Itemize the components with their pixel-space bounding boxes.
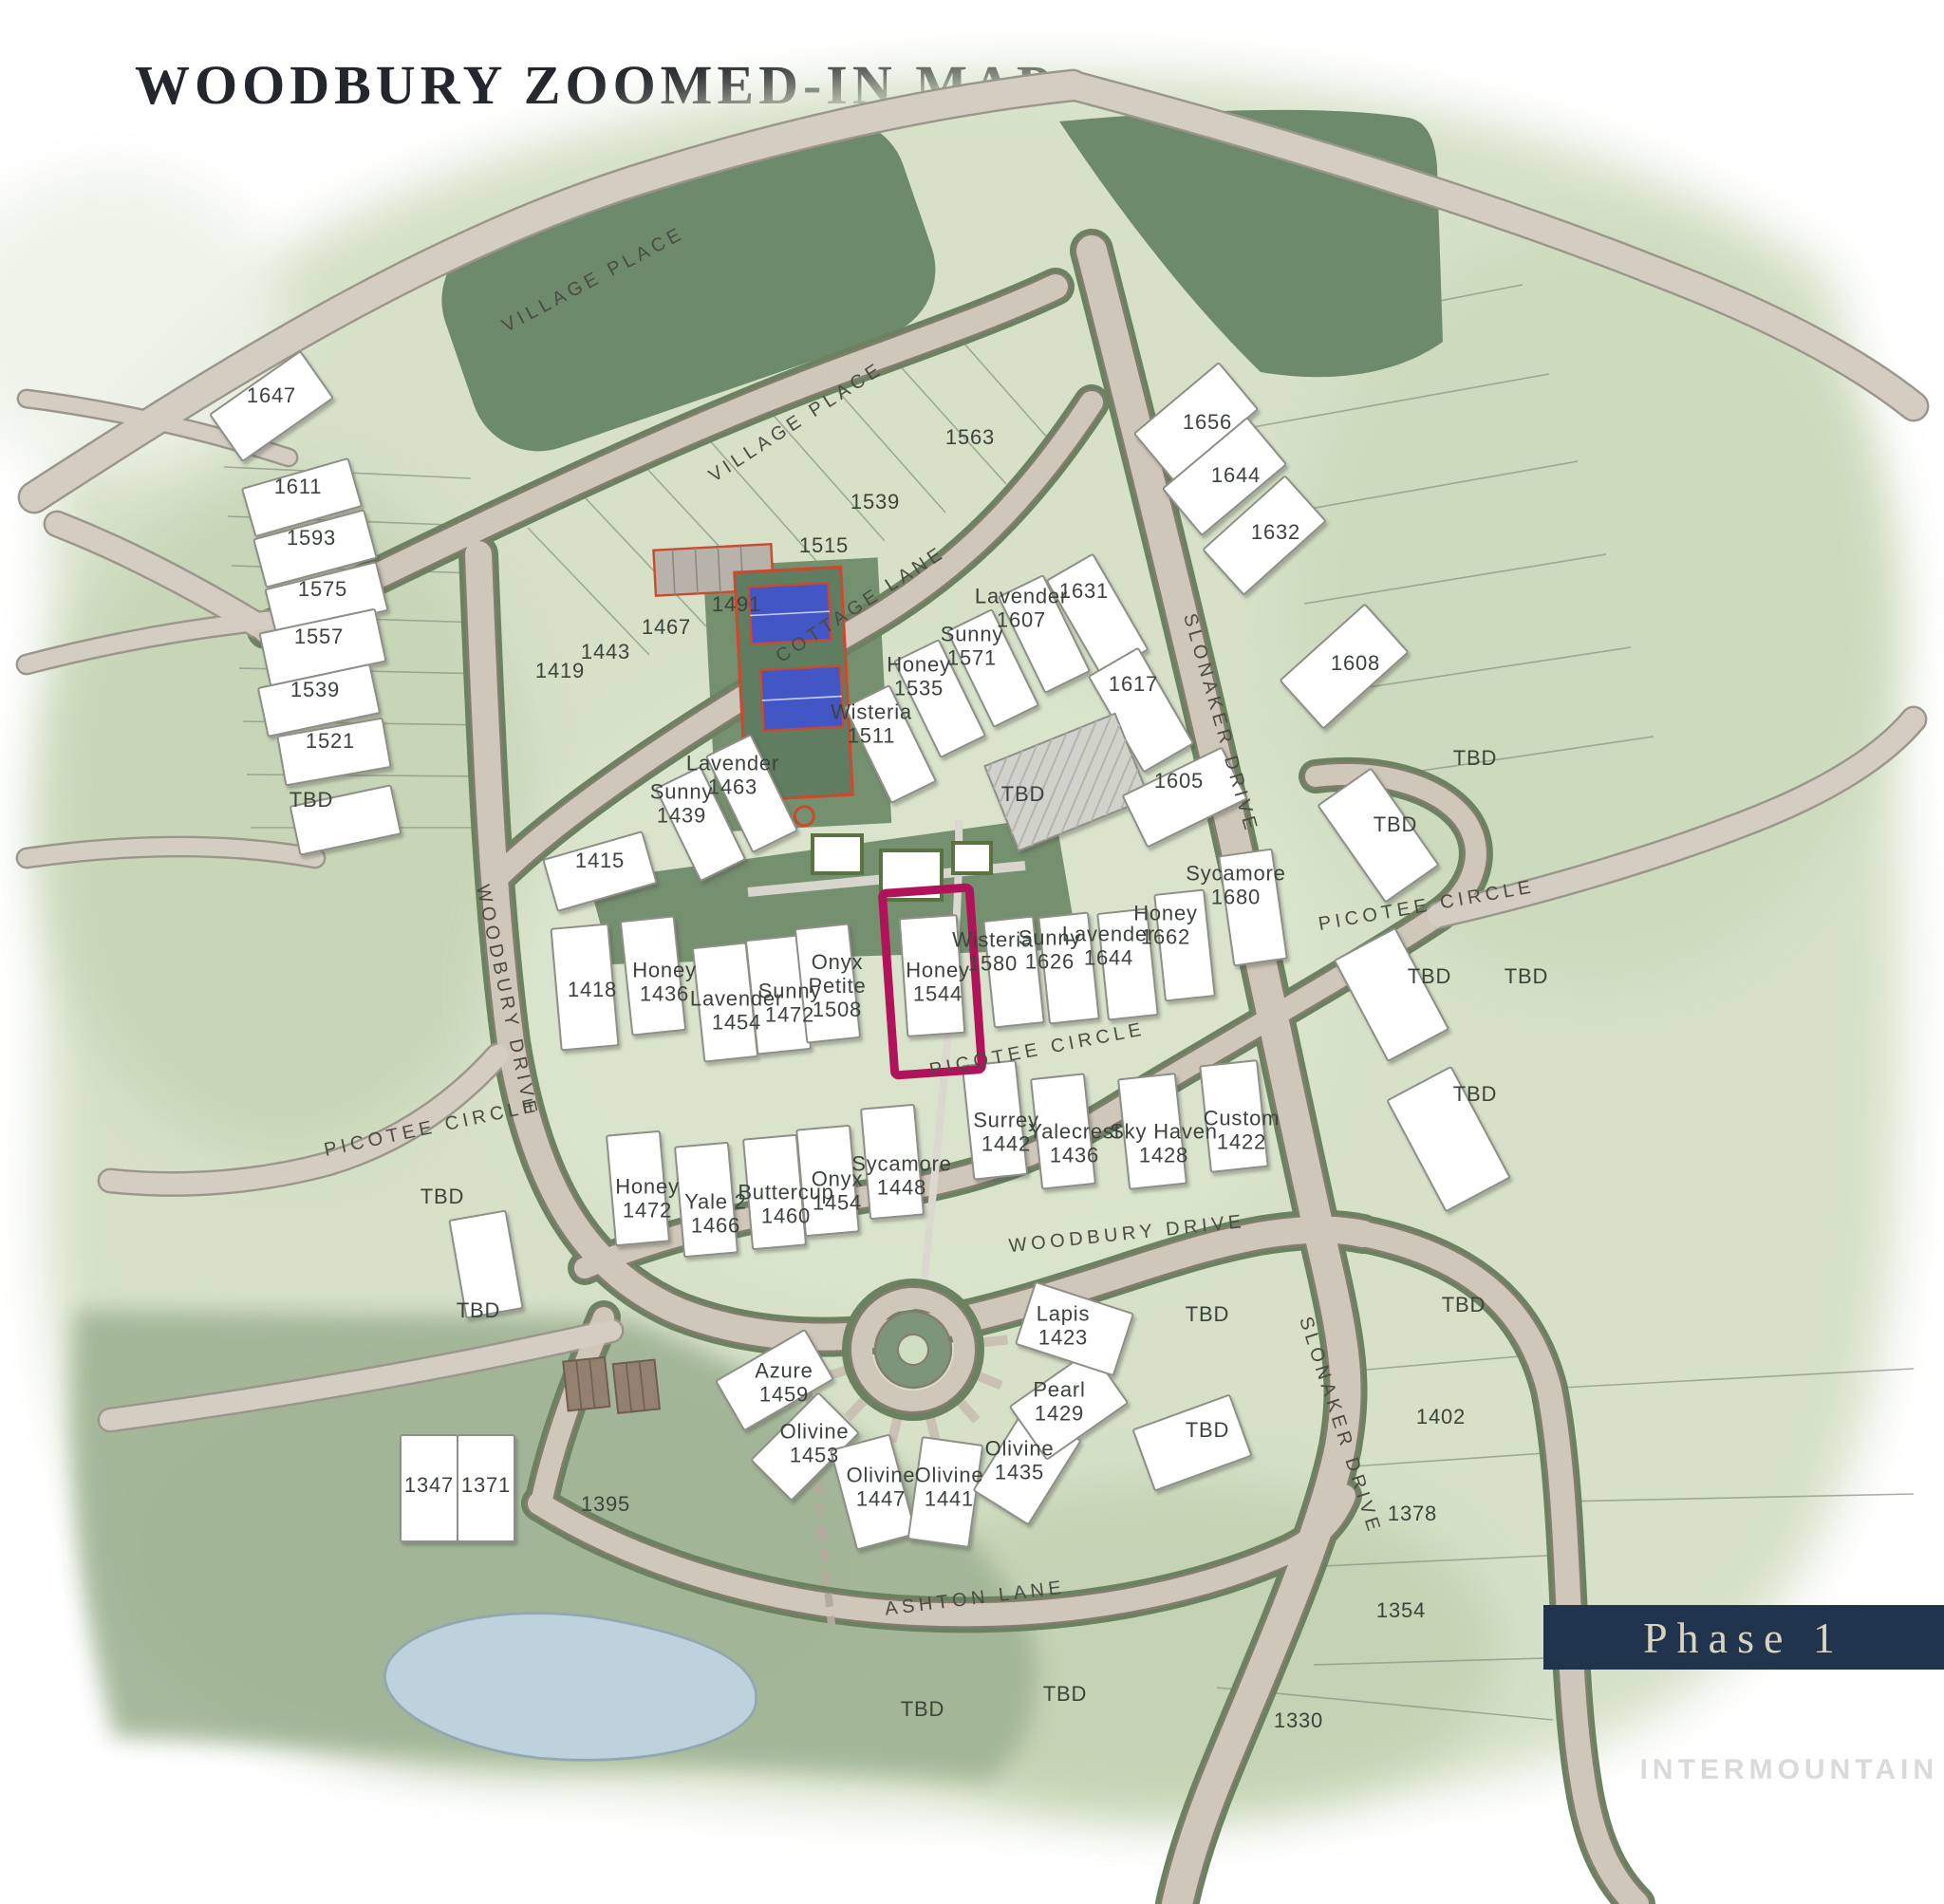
lot-label: TBD [1001, 782, 1045, 806]
lot-label: 1632 [1251, 520, 1300, 544]
lot-label: Honey1535 [887, 653, 951, 700]
lot-label: 1443 [581, 640, 630, 663]
lot-label: TBD [457, 1298, 500, 1322]
lot-label: 1491 [712, 592, 761, 616]
lot-label: 1557 [294, 625, 344, 648]
lot-label: Lapis1423 [1037, 1302, 1091, 1350]
lot-label: TBD [421, 1185, 464, 1208]
lot-label: Olivine1441 [915, 1464, 984, 1511]
lot-label: 1593 [287, 526, 336, 550]
lot-label: 1611 [274, 475, 323, 498]
lot-label: 1656 [1183, 410, 1232, 434]
lot-label: TBD [1186, 1302, 1229, 1326]
lot-label: 1575 [298, 577, 347, 601]
watermark: INTERMOUNTAIN [1640, 1754, 1938, 1786]
lot-label: 1402 [1416, 1405, 1466, 1428]
lot-label: 1354 [1376, 1598, 1426, 1622]
lot-label: TBD [901, 1697, 944, 1721]
lot-label: TBD [1505, 964, 1548, 988]
lot-label: TBD [1453, 1082, 1497, 1106]
lot-label: 1378 [1388, 1502, 1437, 1525]
lot-label: 1608 [1331, 651, 1380, 675]
lot-label: Olivine1447 [847, 1464, 916, 1511]
lot-label: 1395 [581, 1492, 630, 1516]
lot-label: Sunny1439 [650, 780, 713, 828]
lot-label: TBD [1408, 964, 1451, 988]
lot-label: TBD [290, 788, 333, 812]
lot-label: 1539 [290, 678, 340, 701]
lot-label: TBD [1186, 1418, 1229, 1442]
phase-badge: Phase 1 [1543, 1605, 1944, 1670]
lot-label: 1330 [1274, 1708, 1323, 1732]
lot-label: TBD [1453, 746, 1497, 770]
lot-label: 1647 [247, 383, 296, 407]
lot-label: 1418 [568, 978, 617, 1001]
lot-label: 1521 [306, 729, 355, 753]
lot-label: Olivine1435 [985, 1437, 1055, 1484]
lot-label: 1605 [1154, 769, 1204, 793]
lot-label: TBD [1043, 1682, 1087, 1706]
lot-label: 1515 [799, 533, 849, 557]
lot-label: Pearl1429 [1033, 1378, 1085, 1426]
lot-label: 1467 [642, 615, 691, 639]
lot-label: 1371 [461, 1473, 511, 1497]
lot-label: 1415 [575, 849, 625, 872]
lot-label: Azure1459 [755, 1359, 813, 1407]
lot-label: TBD [1374, 812, 1417, 836]
lot-label: TBD [1442, 1293, 1486, 1316]
lot-label: Honey1472 [615, 1175, 680, 1223]
lot-label: 1617 [1109, 672, 1158, 696]
lot-label: 1563 [945, 425, 995, 449]
lot-label: 1347 [404, 1473, 454, 1497]
lot-label: Honey1436 [632, 959, 697, 1006]
lot-label: 1644 [1211, 463, 1261, 487]
lot-label: 1539 [850, 490, 900, 513]
lot-label: Olivine1453 [780, 1420, 850, 1467]
lot-label: Honey1662 [1133, 902, 1198, 949]
lot-label: OnyxPetite1508 [808, 950, 866, 1021]
map-canvas: WOODBURY ZOOMED-IN MAP VILLAGE PLACEVILL… [0, 0, 1944, 1904]
lot-label: 1419 [535, 659, 585, 682]
lot-label: Honey1544 [906, 959, 970, 1006]
